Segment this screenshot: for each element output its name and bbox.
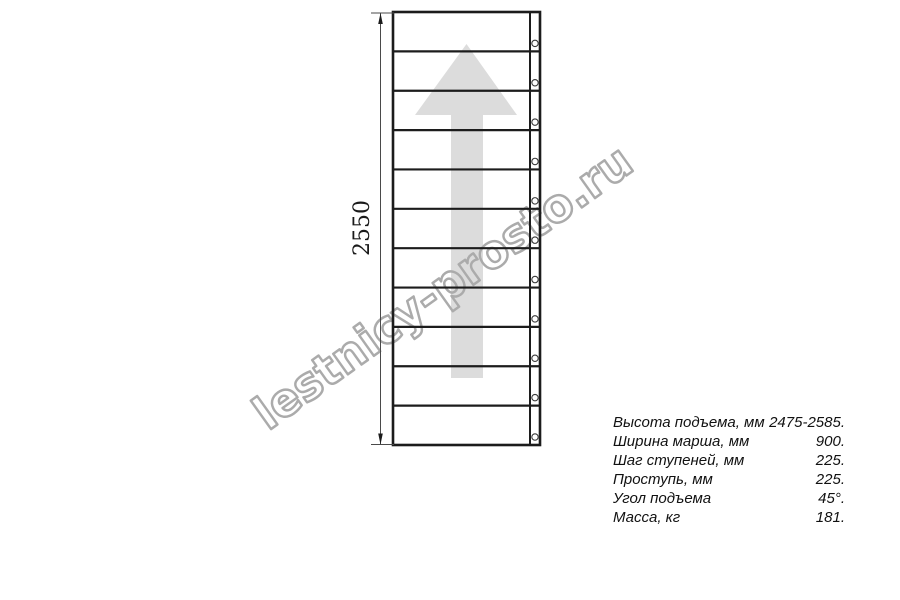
fastener-hole-icon [532,80,538,86]
fastener-hole-icon [532,40,538,46]
spec-value: 181. [816,508,845,527]
spec-value: 45°. [818,489,845,508]
dimension-label: 2550 [350,200,375,256]
spec-value: 225. [816,451,845,470]
spec-label: Проступь, мм [613,470,713,489]
fastener-hole-icon [532,276,538,282]
spec-label: Высота подъема, мм [613,413,765,432]
spec-label: Масса, кг [613,508,680,527]
spec-row: Угол подъема 45°. [613,489,845,508]
spec-label: Ширина марша, мм [613,432,749,451]
technical-drawing-canvas: lestnicy-prosto.ru 2550 Высота подъема, … [0,0,900,600]
spec-label: Угол подъема [613,489,711,508]
spec-row: Ширина марша, мм 900. [613,432,845,451]
fastener-hole-icon [532,434,538,440]
fastener-hole-icon [532,355,538,361]
spec-label: Шаг ступеней, мм [613,451,744,470]
fastener-hole-icon [532,158,538,164]
spec-row: Шаг ступеней, мм 225. [613,451,845,470]
spec-row: Масса, кг 181. [613,508,845,527]
spec-row: Высота подъема, мм 2475-2585. [613,413,845,432]
fastener-hole-icon [532,237,538,243]
fastener-hole-icon [532,394,538,400]
fastener-hole-icon [532,119,538,125]
fastener-hole-icon [532,198,538,204]
dimension-arrowhead-up-icon [378,13,383,24]
spec-value: 2475-2585. [769,413,845,432]
spec-value: 900. [816,432,845,451]
dimension-arrowhead-down-icon [378,434,383,445]
fastener-hole-icon [532,316,538,322]
spec-row: Проступь, мм 225. [613,470,845,489]
spec-table: Высота подъема, мм 2475-2585. Ширина мар… [613,413,845,527]
spec-value: 225. [816,470,845,489]
